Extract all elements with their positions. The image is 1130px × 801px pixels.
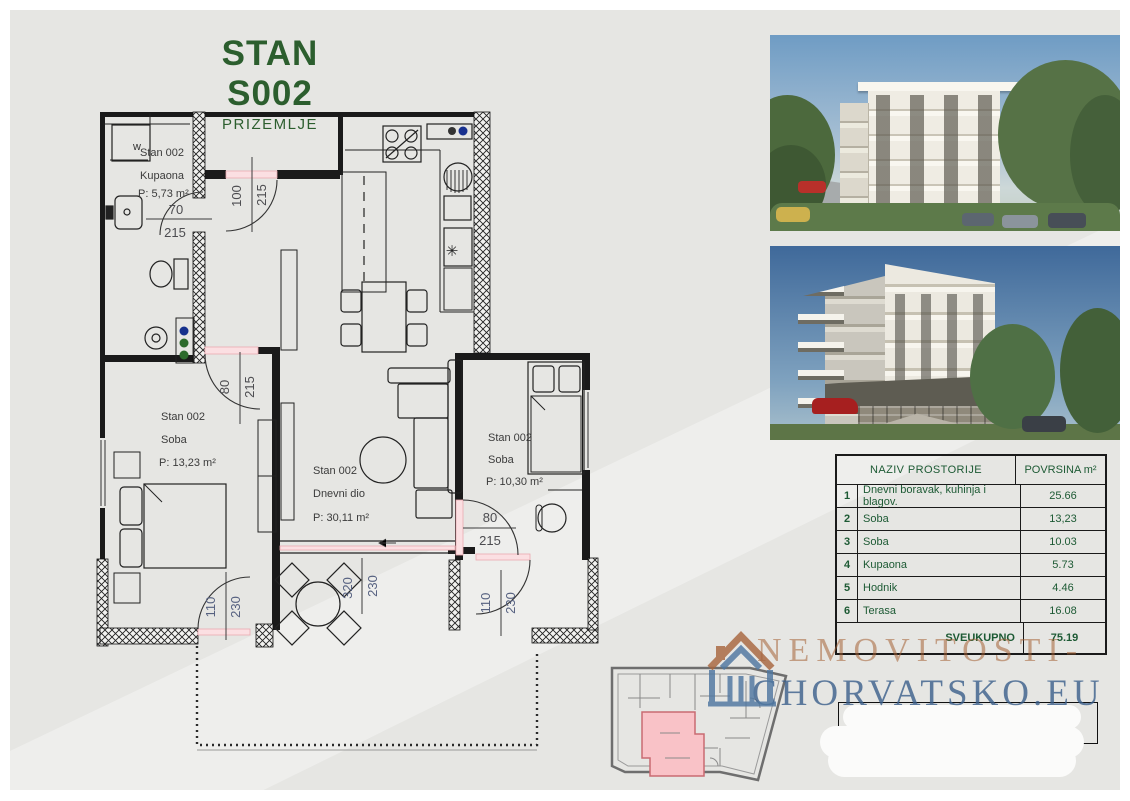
bed2-pillow <box>533 366 554 392</box>
building-render-front <box>770 35 1120 231</box>
dim-ter2-h: 230 <box>503 592 518 614</box>
room-kupaona-area: P: 5,73 m² <box>138 188 189 200</box>
washer-indicator-blue <box>180 327 189 336</box>
dishwasher-symbol: ✳ <box>446 243 459 260</box>
row-name: Soba <box>858 508 1021 530</box>
room-soba1-name1: Stan 002 <box>161 411 205 423</box>
washer-indicator-green <box>180 339 189 348</box>
room-soba2-name1: Stan 002 <box>488 432 532 444</box>
car-dark2 <box>1048 213 1086 228</box>
terrace-furniture <box>275 563 361 645</box>
bed2-pillow2 <box>559 366 580 392</box>
dim-bed1-h: 215 <box>242 376 257 398</box>
dim-entry-w: 100 <box>229 185 244 207</box>
col-header-area: POVRSINA m² <box>1016 456 1105 484</box>
bedroom1-furniture <box>114 420 276 603</box>
page-title: STAN S002 <box>185 34 355 114</box>
washer-indicator-green2 <box>180 351 189 360</box>
room-dnevni-area: P: 30,11 m² <box>313 512 369 524</box>
car-gray <box>1002 215 1038 228</box>
dim-bed1-w: 80 <box>217 380 232 394</box>
page-subtitle: PRIZEMLJE <box>185 116 355 133</box>
room-soba1-area: P: 13,23 m² <box>159 457 216 469</box>
car2-dark <box>1022 416 1066 432</box>
building-render-corner <box>770 246 1120 440</box>
car-yellow <box>776 207 810 222</box>
table-row: 4 Kupaona 5.73 <box>837 554 1105 577</box>
room-area-table: NAZIV PROSTORIJE POVRSINA m² 1 Dnevni bo… <box>835 454 1107 655</box>
building-key-plan <box>600 638 815 793</box>
bed2-mattress <box>531 396 581 472</box>
room-soba1-name2: Soba <box>161 434 188 446</box>
row-num: 6 <box>837 600 858 622</box>
tree2-right2 <box>1060 308 1120 433</box>
row-num: 1 <box>837 485 858 507</box>
table-row: 3 Soba 10.03 <box>837 531 1105 554</box>
row-area: 5.73 <box>1021 554 1105 576</box>
highlighted-unit <box>642 712 704 776</box>
car-dark1 <box>962 213 994 226</box>
dim-bed2-w: 80 <box>483 510 497 525</box>
row-name: Soba <box>858 531 1021 553</box>
col-header-name: NAZIV PROSTORIJE <box>837 456 1016 484</box>
fridge <box>444 268 472 310</box>
kitchen-fixtures <box>281 124 474 350</box>
room-kupaona-name1: Stan 002 <box>140 147 184 159</box>
table-row: 2 Soba 13,23 <box>837 508 1105 531</box>
total-label: SVEUKUPNO <box>837 623 1024 653</box>
row-num: 4 <box>837 554 858 576</box>
grass2 <box>770 424 1120 440</box>
dim-ter1-h: 230 <box>228 596 243 618</box>
dim-bed2-h: 215 <box>479 533 501 548</box>
table-total-row: SVEUKUPNO 75.19 <box>837 623 1105 653</box>
nightstand2 <box>114 573 140 603</box>
tree2-right <box>970 324 1055 429</box>
living-furniture <box>281 282 462 520</box>
row-area: 25.66 <box>1021 485 1105 507</box>
row-name: Hodnik <box>858 577 1021 599</box>
shelf-unit <box>281 250 297 350</box>
nightstand <box>114 452 140 478</box>
room-dnevni-name1: Stan 002 <box>313 465 357 477</box>
total-value: 75.19 <box>1024 623 1105 653</box>
bed1-pillow <box>120 487 142 525</box>
dim-ter2-w: 110 <box>478 593 493 614</box>
dim-bath-w: 70 <box>169 202 183 217</box>
car-red <box>798 181 826 193</box>
table-row: 1 Dnevni boravak, kuhinja i blagov. 25.6… <box>837 485 1105 508</box>
sofa-ottoman <box>416 490 452 518</box>
row-area: 13,23 <box>1021 508 1105 530</box>
table-header-row: NAZIV PROSTORIJE POVRSINA m² <box>837 456 1105 485</box>
building-side-face <box>840 103 869 219</box>
tv-board <box>281 403 294 520</box>
room-soba2-name2: Soba <box>488 454 515 466</box>
sofa-seat <box>398 384 448 418</box>
room-dnevni-name2: Dnevni dio <box>313 488 365 500</box>
row-num: 2 <box>837 508 858 530</box>
coffee-table <box>360 437 406 483</box>
row-area: 10.03 <box>1021 531 1105 553</box>
sofa-arm <box>388 368 450 383</box>
row-area: 16.08 <box>1021 600 1105 622</box>
row-name: Terasa <box>858 600 1021 622</box>
oven <box>444 196 471 220</box>
redaction-blob3 <box>828 744 1076 777</box>
terrace-table <box>296 582 340 626</box>
dim-bath-h: 215 <box>164 225 186 240</box>
dim-entry-h: 215 <box>254 184 269 206</box>
room-soba2-area: P: 10,30 m² <box>486 476 543 488</box>
row-name: Kupaona <box>858 554 1021 576</box>
bedroom2-furniture <box>528 362 584 532</box>
building-roof <box>858 82 1024 91</box>
dim-win-h: 230 <box>365 575 380 597</box>
room-kupaona-name2: Kupaona <box>140 170 185 182</box>
title-block: STAN S002 PRIZEMLJE <box>185 34 355 133</box>
dim-win-w: 320 <box>340 577 355 599</box>
table-row: 5 Hodnik 4.46 <box>837 577 1105 600</box>
row-num: 5 <box>837 577 858 599</box>
row-name: Dnevni boravak, kuhinja i blagov. <box>858 485 1021 507</box>
car2-red <box>812 398 858 414</box>
bed2-frame <box>528 362 584 474</box>
floor-plan-sheet: STAN S002 PRIZEMLJE <box>0 0 1130 801</box>
sofa-chaise <box>414 418 448 488</box>
apartment-floor-plan: ✳ w <box>88 100 648 775</box>
round-basin <box>444 163 472 191</box>
bed1-pillow2 <box>120 529 142 567</box>
terrace-boundary <box>197 646 537 750</box>
table-row: 6 Terasa 16.08 <box>837 600 1105 623</box>
dim-ter1-w: 110 <box>203 597 218 618</box>
row-num: 3 <box>837 531 858 553</box>
row-area: 4.46 <box>1021 577 1105 599</box>
building-front-face <box>868 91 1000 219</box>
